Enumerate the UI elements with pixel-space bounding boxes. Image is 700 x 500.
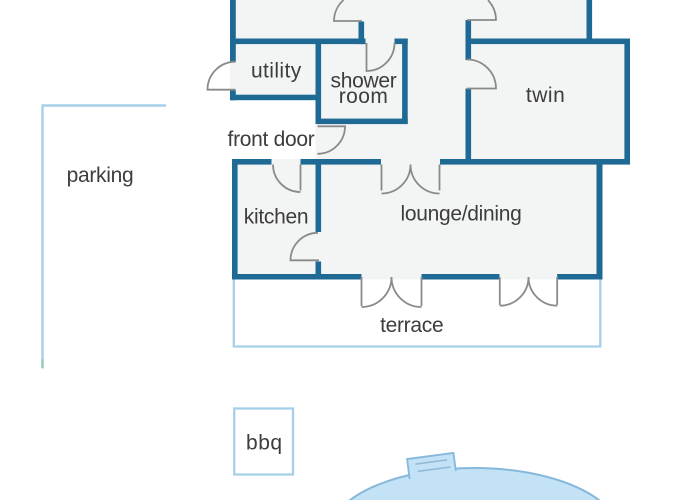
svg-text:room: room xyxy=(339,85,388,108)
svg-text:lounge/dining: lounge/dining xyxy=(400,203,521,226)
svg-text:kitchen: kitchen xyxy=(244,206,308,229)
svg-text:terrace: terrace xyxy=(380,314,443,337)
svg-text:bbq: bbq xyxy=(246,432,283,455)
svg-text:parking: parking xyxy=(67,164,134,187)
svg-text:utility: utility xyxy=(251,60,302,83)
svg-text:twin: twin xyxy=(526,84,565,107)
svg-text:front door: front door xyxy=(228,128,315,151)
